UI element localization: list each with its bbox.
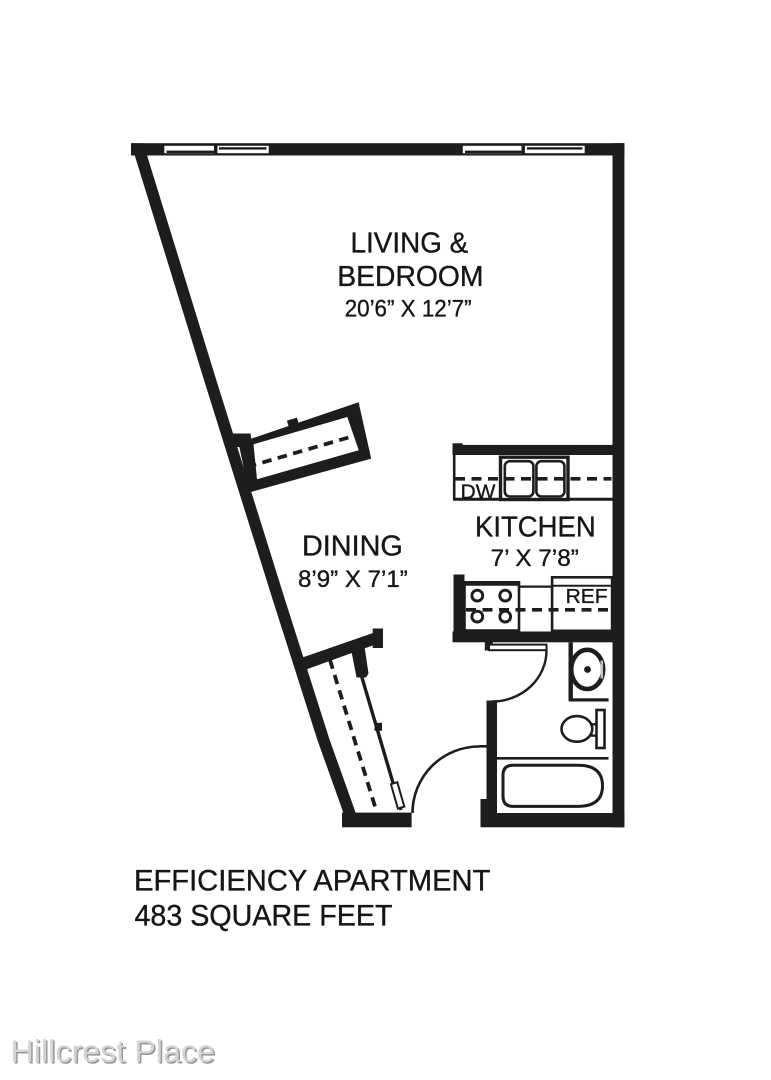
svg-text:EFFICIENCY APARTMENT: EFFICIENCY APARTMENT [134, 865, 490, 898]
svg-text:KITCHEN: KITCHEN [475, 511, 596, 543]
svg-text:LIVING &: LIVING & [351, 228, 469, 260]
svg-text:483 SQUARE FEET: 483 SQUARE FEET [135, 900, 393, 933]
svg-text:BEDROOM: BEDROOM [337, 261, 483, 293]
svg-text:20’6” X 12’7”: 20’6” X 12’7” [345, 296, 472, 322]
svg-text:REF: REF [566, 585, 608, 608]
svg-text:7’ X 7’8”: 7’ X 7’8” [491, 546, 579, 572]
svg-text:8’9” X 7’1”: 8’9” X 7’1” [298, 567, 408, 593]
svg-text:DINING: DINING [302, 531, 403, 563]
svg-text:Hillcrest Place: Hillcrest Place [11, 1033, 216, 1069]
svg-text:DW: DW [461, 480, 496, 503]
